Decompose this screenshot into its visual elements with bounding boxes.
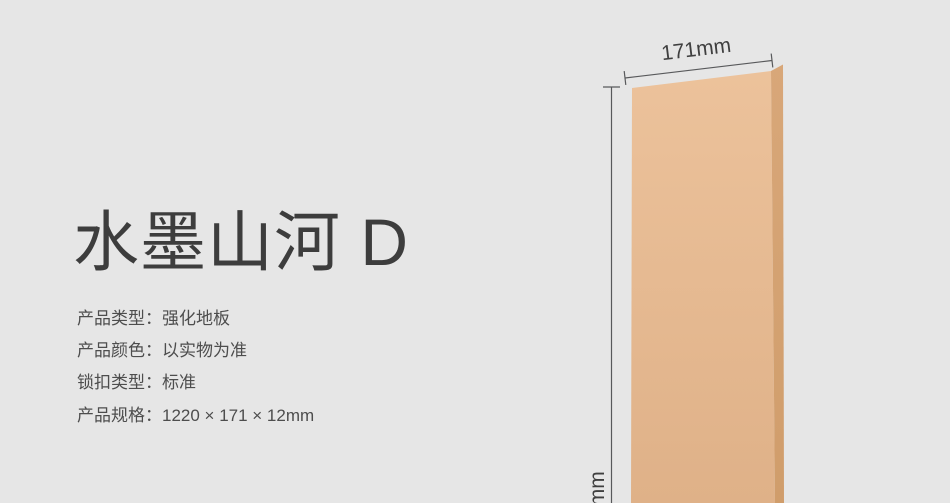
width-dimension-tick-left (624, 71, 626, 85)
plank-figure: 171mm 1220mm (0, 0, 950, 503)
length-dimension-label: 1220mm (586, 471, 609, 503)
length-dimension: 1220mm (586, 87, 620, 503)
width-dimension-tick-right (771, 54, 773, 68)
plank-front-face (631, 71, 775, 503)
width-dimension-label: 171mm (660, 34, 732, 65)
product-detail-section: 水墨山河 D 产品类型：强化地板 产品颜色：以实物为准 锁扣类型：标准 产品规格… (0, 0, 950, 503)
